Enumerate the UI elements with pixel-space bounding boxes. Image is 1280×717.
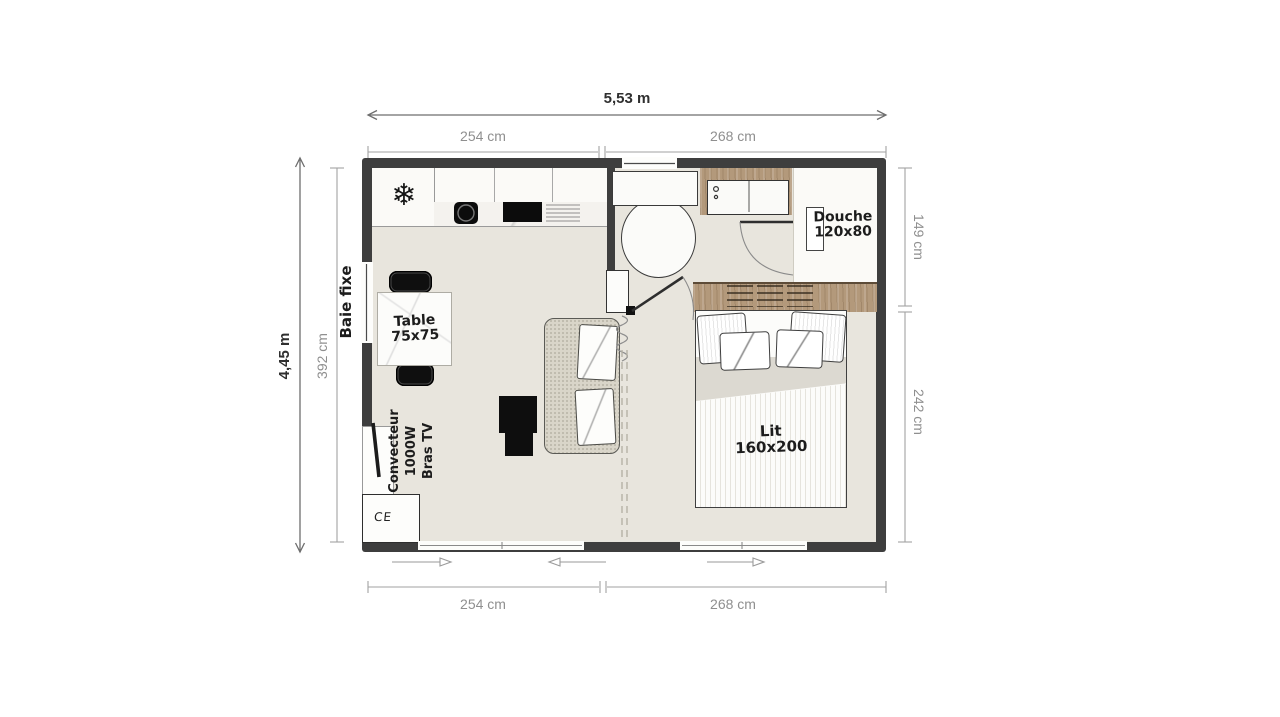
heater-label-line2: 1000W (403, 391, 420, 511)
toilet-tank (612, 171, 698, 206)
heater-label-line3: Bras TV (420, 391, 437, 511)
shower-label-line2: 120x80 (806, 224, 880, 240)
dim-width-total: 5,53 m (577, 90, 677, 107)
dim-height-total: 4,45 m (276, 306, 298, 406)
bed-label: Lit 160x200 (695, 420, 846, 458)
cabinet-divider (494, 168, 495, 202)
table-label-line2: 75x75 (391, 328, 440, 346)
sofa-cushion (575, 388, 617, 446)
pillow (719, 331, 770, 371)
dim-width-left-bottom: 254 cm (433, 596, 533, 612)
vanity-sink (707, 180, 789, 215)
ce-mark: CE (373, 510, 392, 524)
heater-label: Convecteur 1000W Bras TV (386, 391, 440, 511)
door-hinge (626, 306, 635, 315)
headboard-slats (727, 285, 815, 307)
dim-width-right-top: 268 cm (683, 128, 783, 144)
table-label: Table 75x75 (390, 313, 440, 346)
sliding-bay-left (418, 541, 584, 550)
dining-table: Table 75x75 (377, 292, 452, 366)
kitchen-sink (454, 202, 478, 224)
dim-depth-bathroom: 149 cm (905, 187, 927, 287)
black-table-base (505, 433, 533, 456)
dim-width-left-top: 254 cm (433, 128, 533, 144)
heater-label-line1: Convecteur (386, 391, 403, 511)
cooktop (503, 202, 542, 222)
dim-line-width-total-arrow (368, 111, 886, 120)
dim-height-inner: 392 cm (314, 306, 336, 406)
cabinet-divider (552, 168, 553, 202)
floor-plan-canvas: ❄ Douche 120x80 Lit 160x200 (0, 0, 1280, 717)
chair-bottom (396, 363, 434, 386)
sliding-direction-arrows (392, 558, 764, 566)
chair-top (389, 271, 432, 293)
wc-window (622, 157, 677, 169)
sliding-bay-right (680, 541, 807, 550)
freezer-snowflake-icon: ❄ (388, 178, 420, 214)
baie-fixe-window (361, 262, 373, 343)
sofa-cushion (577, 324, 619, 381)
pillow (775, 329, 823, 369)
dim-depth-bedroom: 242 cm (905, 362, 927, 462)
toilet-bowl (621, 198, 696, 278)
bed: Lit 160x200 (695, 310, 847, 508)
dim-width-right-bottom: 268 cm (683, 596, 783, 612)
dim-line-width-split-bottom (368, 581, 886, 593)
black-table (499, 396, 537, 433)
shower-label: Douche 120x80 (806, 209, 881, 241)
fixed-window-label: Baie fixe (338, 247, 360, 357)
